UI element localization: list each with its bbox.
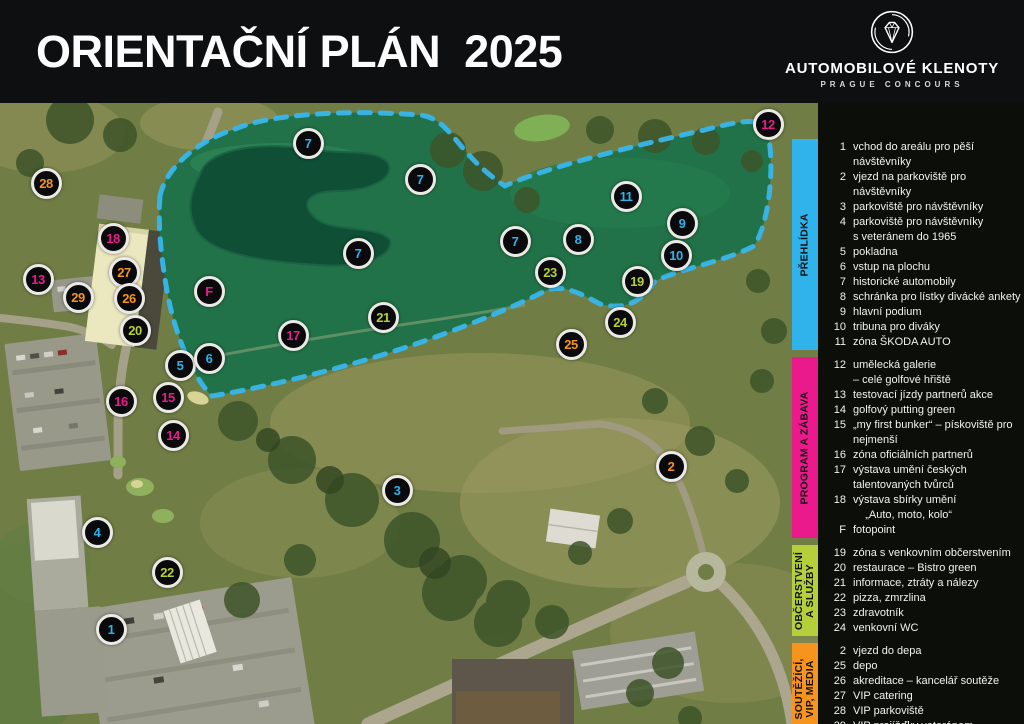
legend-item: 11 zóna ŠKODA AUTO: [823, 335, 1024, 350]
legend-item: 24 venkovní WC: [823, 621, 1024, 636]
legend-group: SOUTĚŽÍCÍ, VIP, MEDIA 2 vjezd do depa 25…: [792, 643, 1024, 724]
legend-category-label: PROGRAM A ZÁBAVA: [800, 391, 811, 504]
legend-item-text: umělecká galerie – celé golfové hřiště: [853, 358, 951, 388]
map-marker: 7: [500, 226, 531, 257]
map-marker: 25: [556, 329, 587, 360]
map-marker: 11: [611, 181, 642, 212]
legend-items: 1 vchod do areálu pro pěší návštěvníky 2…: [818, 139, 1024, 350]
legend-item: 26 akreditace – kancelář soutěže: [823, 674, 1024, 689]
legend-item-number: F: [823, 523, 846, 538]
legend-item-text: parkoviště pro návštěvníky: [853, 200, 983, 215]
legend-item: 20 restaurace – Bistro green: [823, 561, 1024, 576]
legend-item: 21 informace, ztráty a nálezy: [823, 576, 1024, 591]
map-marker: 19: [622, 266, 653, 297]
legend-item-text: restaurace – Bistro green: [853, 561, 977, 576]
legend-item-number: 28: [823, 704, 846, 719]
legend-groups: PŘEHLÍDKA 1 vchod do areálu pro pěší náv…: [792, 139, 1024, 724]
legend-item: 27 VIP catering: [823, 689, 1024, 704]
brand-logo: AUTOMOBILOVÉ KLENOTY PRAGUE CONCOURS: [782, 6, 1002, 89]
map-marker: 15: [153, 382, 184, 413]
legend-category-label: OBČERSTVENÍ A SLUŽBY: [794, 551, 816, 629]
map-marker: 26: [114, 283, 145, 314]
legend-item: 2 vjezd na parkoviště pro návštěvníky: [823, 170, 1024, 200]
legend-item-number: 2: [823, 644, 846, 659]
legend-item-number: 18: [823, 493, 846, 523]
legend-items: 19 zóna s venkovním občerstvením 20 rest…: [818, 545, 1024, 636]
legend-item: 18 výstava sbírky umění „Auto, moto, kol…: [823, 493, 1024, 523]
legend-item: 6 vstup na plochu: [823, 260, 1024, 275]
legend-item-text: hlavní podium: [853, 305, 922, 320]
legend-item: 25 depo: [823, 659, 1024, 674]
map-marker: 6: [194, 343, 225, 374]
legend-item: 19 zóna s venkovním občerstvením: [823, 546, 1024, 561]
legend-item: 7 historické automobily: [823, 275, 1024, 290]
legend-item: 16 zóna oficiálních partnerů: [823, 448, 1024, 463]
map-marker: 2: [656, 451, 687, 482]
legend-item-text: zóna oficiálních partnerů: [853, 448, 973, 463]
orientation-plan-poster: ORIENTAČNÍ PLÁN 2025 AUTOMOBILOVÉ KLENOT…: [0, 0, 1024, 724]
legend-item-number: 1: [823, 140, 846, 170]
legend-item: 3 parkoviště pro návštěvníky: [823, 200, 1024, 215]
legend-panel: PŘEHLÍDKA 1 vchod do areálu pro pěší náv…: [792, 103, 1024, 724]
map-marker: 7: [343, 238, 374, 269]
legend-item-text: akreditace – kancelář soutěže: [853, 674, 999, 689]
map-marker: 3: [382, 475, 413, 506]
legend-item-text: vstup na plochu: [853, 260, 930, 275]
legend-category-tab: OBČERSTVENÍ A SLUŽBY: [792, 545, 818, 636]
map-marker: 21: [368, 302, 399, 333]
map-marker: 29: [63, 282, 94, 313]
map-marker: 10: [661, 240, 692, 271]
legend-item: 2 vjezd do depa: [823, 644, 1024, 659]
map-marker: 23: [535, 257, 566, 288]
legend-group: OBČERSTVENÍ A SLUŽBY 19 zóna s venkovním…: [792, 545, 1024, 636]
legend-category-tab: SOUTĚŽÍCÍ, VIP, MEDIA: [792, 643, 818, 724]
map-marker: F: [194, 276, 225, 307]
legend-group: PŘEHLÍDKA 1 vchod do areálu pro pěší náv…: [792, 139, 1024, 350]
legend-item-number: 22: [823, 591, 846, 606]
map-marker: 24: [605, 307, 636, 338]
map-marker: 13: [23, 264, 54, 295]
page-title: ORIENTAČNÍ PLÁN 2025: [0, 26, 562, 78]
legend-item-number: 24: [823, 621, 846, 636]
legend-item: 14 golfový putting green: [823, 403, 1024, 418]
legend-item-number: 20: [823, 561, 846, 576]
legend-item-number: 19: [823, 546, 846, 561]
legend-category-label: PŘEHLÍDKA: [800, 213, 811, 276]
legend-item-text: schránka pro lístky divácké ankety: [853, 290, 1021, 305]
map-marker: 1: [96, 614, 127, 645]
legend-item: 29 VIP projížďky veteránem: [823, 719, 1024, 724]
legend-item-number: 11: [823, 335, 846, 350]
brand-subtitle: PRAGUE CONCOURS: [782, 80, 1002, 89]
legend-item-text: tribuna pro diváky: [853, 320, 940, 335]
legend-item-number: 10: [823, 320, 846, 335]
map-marker: 22: [152, 557, 183, 588]
header-bar: ORIENTAČNÍ PLÁN 2025 AUTOMOBILOVÉ KLENOT…: [0, 0, 1024, 103]
legend-item: 12 umělecká galerie – celé golfové hřišt…: [823, 358, 1024, 388]
legend-item-text: depo: [853, 659, 877, 674]
legend-item-text: VIP parkoviště: [853, 704, 924, 719]
legend-item-number: 13: [823, 388, 846, 403]
legend-item-text: výstava umění českých talentovaných tvůr…: [853, 463, 967, 493]
map-marker: 12: [753, 109, 784, 140]
legend-item-number: 17: [823, 463, 846, 493]
legend-item-text: zdravotník: [853, 606, 904, 621]
map-marker: 14: [158, 420, 189, 451]
map-marker: 5: [165, 350, 196, 381]
map-marker: 8: [563, 224, 594, 255]
legend-item-number: 12: [823, 358, 846, 388]
brand-name: AUTOMOBILOVÉ KLENOTY: [782, 60, 1002, 77]
legend-item-number: 26: [823, 674, 846, 689]
legend-item-text: informace, ztráty a nálezy: [853, 576, 978, 591]
legend-item: 23 zdravotník: [823, 606, 1024, 621]
legend-item-text: VIP catering: [853, 689, 913, 704]
legend-item-number: 6: [823, 260, 846, 275]
map-marker: 16: [106, 386, 137, 417]
legend-items: 2 vjezd do depa 25 depo 26 akreditace – …: [818, 643, 1024, 724]
legend-item-text: parkoviště pro návštěvníky s veteránem d…: [853, 215, 983, 245]
legend-item-text: golfový putting green: [853, 403, 955, 418]
legend-item-text: zóna ŠKODA AUTO: [853, 335, 951, 350]
map-marker: 28: [31, 168, 62, 199]
map-marker: 20: [120, 315, 151, 346]
legend-item-number: 4: [823, 215, 846, 245]
legend-item-number: 15: [823, 418, 846, 448]
legend-item-number: 27: [823, 689, 846, 704]
legend-item: 28 VIP parkoviště: [823, 704, 1024, 719]
map-marker: 9: [667, 208, 698, 239]
legend-item-number: 7: [823, 275, 846, 290]
legend-item-number: 3: [823, 200, 846, 215]
map-marker: 7: [405, 164, 436, 195]
legend-item-text: testovací jízdy partnerů akce: [853, 388, 993, 403]
legend-category-tab: PŘEHLÍDKA: [792, 139, 818, 350]
legend-group: PROGRAM A ZÁBAVA 12 umělecká galerie – c…: [792, 357, 1024, 538]
diamond-emblem-icon: [866, 6, 918, 58]
legend-item-text: pizza, zmrzlina: [853, 591, 926, 606]
legend-item-text: vjezd na parkoviště pro návštěvníky: [853, 170, 1024, 200]
legend-category-label: SOUTĚŽÍCÍ, VIP, MEDIA: [794, 658, 816, 719]
legend-item: F fotopoint: [823, 523, 1024, 538]
legend-item-text: vchod do areálu pro pěší návštěvníky: [853, 140, 974, 170]
legend-item: 8 schránka pro lístky divácké ankety: [823, 290, 1024, 305]
map-marker: 18: [98, 223, 129, 254]
legend-item-text: zóna s venkovním občerstvením: [853, 546, 1011, 561]
legend-item-text: fotopoint: [853, 523, 895, 538]
legend-item: 10 tribuna pro diváky: [823, 320, 1024, 335]
legend-item-number: 14: [823, 403, 846, 418]
legend-item: 5 pokladna: [823, 245, 1024, 260]
legend-item: 9 hlavní podium: [823, 305, 1024, 320]
legend-item: 17 výstava umění českých talentovaných t…: [823, 463, 1024, 493]
legend-items: 12 umělecká galerie – celé golfové hřišt…: [818, 357, 1024, 538]
legend-item: 1 vchod do areálu pro pěší návštěvníky: [823, 140, 1024, 170]
legend-item-text: historické automobily: [853, 275, 956, 290]
legend-item-number: 25: [823, 659, 846, 674]
map-marker: 17: [278, 320, 309, 351]
legend-item-text: VIP projížďky veteránem: [853, 719, 973, 724]
legend-item-number: 9: [823, 305, 846, 320]
legend-category-tab: PROGRAM A ZÁBAVA: [792, 357, 818, 538]
legend-item-text: pokladna: [853, 245, 898, 260]
legend-item-number: 8: [823, 290, 846, 305]
legend-item: 4 parkoviště pro návštěvníky s veteránem…: [823, 215, 1024, 245]
legend-item: 13 testovací jízdy partnerů akce: [823, 388, 1024, 403]
legend-item-number: 16: [823, 448, 846, 463]
legend-item-text: vjezd do depa: [853, 644, 922, 659]
legend-item-text: venkovní WC: [853, 621, 918, 636]
legend-item-number: 23: [823, 606, 846, 621]
legend-item-number: 5: [823, 245, 846, 260]
legend-item-text: výstava sbírky umění „Auto, moto, kolo“: [853, 493, 956, 523]
legend-item: 15 „my first bunker“ – pískoviště pro ne…: [823, 418, 1024, 448]
legend-item-text: „my first bunker“ – pískoviště pro nejme…: [853, 418, 1013, 448]
map-marker: 4: [82, 517, 113, 548]
legend-item-number: 21: [823, 576, 846, 591]
legend-item-number: 29: [823, 719, 846, 724]
legend-item: 22 pizza, zmrzlina: [823, 591, 1024, 606]
map-marker: 7: [293, 128, 324, 159]
legend-item-number: 2: [823, 170, 846, 200]
